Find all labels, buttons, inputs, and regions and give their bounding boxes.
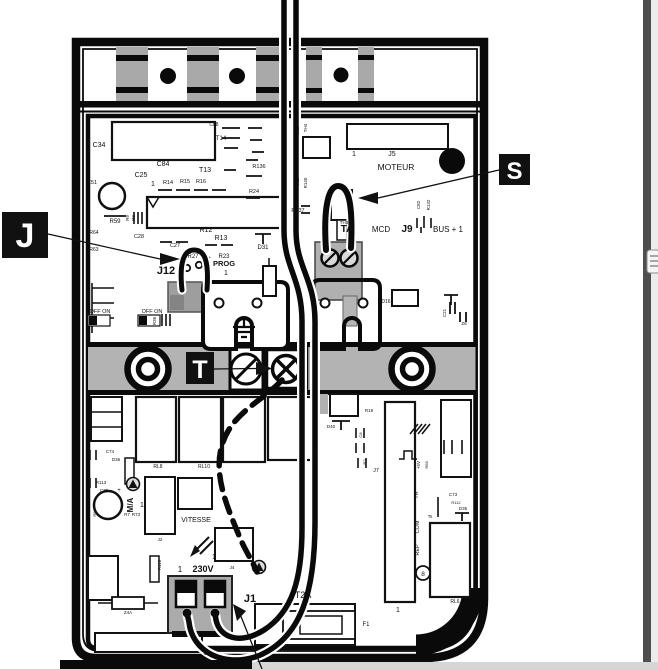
board-label: C34: [93, 142, 106, 149]
board-label: OFF ON: [90, 309, 111, 315]
wire-terminal-dot: [211, 609, 220, 618]
callout-s-letter: S: [506, 158, 522, 185]
board-label: U11: [295, 178, 300, 186]
board-label: J2: [158, 537, 163, 542]
relay-rl10: [179, 397, 221, 462]
faston-hole: [253, 299, 262, 308]
board-label: 230V: [192, 564, 213, 574]
board-label: REP: [415, 544, 421, 556]
board-label: 1: [212, 554, 216, 561]
board-label: C1: [203, 651, 210, 657]
board-label: R15: [180, 179, 190, 185]
board-label: R136: [252, 164, 265, 170]
board-label: C74: [106, 449, 115, 454]
board-label: C73: [449, 492, 458, 497]
cross-screw-icon: [273, 356, 300, 383]
board-label: 8: [421, 571, 425, 578]
board-label: U12: [295, 126, 300, 135]
mounting-washer: [128, 349, 169, 390]
board-label: C88: [209, 122, 218, 128]
board-label: D36: [112, 457, 121, 462]
scroll-grip-handle[interactable]: [647, 250, 658, 273]
board-label: J1: [244, 593, 256, 605]
faston-hole: [321, 299, 330, 308]
fuse-component: [263, 266, 276, 296]
callout-t-letter: T: [192, 356, 207, 384]
board-label: OFF ON: [142, 309, 163, 315]
board-label: T14: [216, 136, 227, 142]
board-label: C27: [170, 243, 180, 249]
board-label: T2A: [295, 590, 312, 600]
ic-r12: [147, 197, 283, 228]
board-dot: [439, 148, 465, 174]
board-label: R36: [152, 316, 157, 325]
board-label: D40: [327, 424, 336, 429]
board-label: R2: [362, 459, 367, 465]
bottom-frame-bar: [60, 660, 252, 669]
board-label: BUS + 1: [433, 225, 464, 234]
document-page: J S T C34C84C25T13T14C881R14R15R16R136R2…: [0, 0, 658, 669]
board-label: R115: [157, 559, 162, 570]
board-label: +5V: [416, 461, 421, 469]
relay-rl8: [136, 397, 176, 462]
board-label: R64: [89, 230, 98, 236]
board-label: C51: [87, 180, 97, 186]
board-label: MCD: [372, 225, 390, 234]
board-label: 1: [151, 181, 155, 188]
board-label: D16: [381, 299, 390, 305]
board-label: R19: [365, 408, 374, 413]
board-label: R12: [200, 227, 213, 234]
connector-small: [303, 137, 330, 158]
faston-hole: [359, 299, 368, 308]
board-label: VITESSE: [181, 517, 211, 524]
board-label: M/A: [126, 497, 135, 512]
board-label: R112: [451, 500, 461, 505]
board-label: D35: [459, 506, 468, 511]
board-label: R98: [86, 509, 91, 517]
vitesse-block: [178, 478, 212, 509]
board-label: R7: [124, 512, 130, 517]
board-label: F1: [362, 622, 370, 628]
component-block: [441, 400, 471, 477]
board-label: C21: [442, 308, 447, 317]
board-label: 1: [140, 502, 144, 509]
faston-hole: [215, 299, 224, 308]
component-block: [330, 394, 358, 416]
connector-j5-moteur: [347, 124, 448, 149]
board-label: J7: [373, 468, 379, 474]
bottom-gray-bar: [252, 662, 658, 669]
board-label: 1: [352, 151, 356, 158]
board-label: Z6: [461, 321, 467, 326]
board-label: RL6: [450, 599, 459, 605]
relay-rl6: [430, 523, 470, 597]
viewer-margin-strip: [651, 0, 658, 669]
board-label: C84: [157, 161, 170, 168]
board-label: R8: [131, 215, 136, 221]
board-label: R137: [291, 208, 304, 214]
board-label: C82: [416, 200, 421, 209]
board-label: R63: [89, 247, 98, 253]
fuse-z4a: [112, 597, 144, 609]
board-label: R113: [96, 480, 107, 485]
rail-rivet: [160, 68, 176, 84]
board-label: C25: [135, 172, 148, 179]
board-label: D31: [257, 245, 269, 251]
capacitor-c51: [99, 183, 125, 209]
board-label: R13: [215, 235, 228, 242]
capacitor-c75: [94, 491, 122, 519]
rail-rivet: [334, 68, 349, 83]
callout-j-letter: J: [16, 217, 35, 255]
board-label: PROG: [213, 259, 235, 268]
board-label: RL10: [198, 464, 210, 470]
board-label: R27: [187, 254, 199, 260]
board-label: TA: [341, 224, 354, 235]
board-label: TR: [414, 491, 420, 498]
board-label: TH4: [303, 123, 308, 132]
wiring-diagram: J S T C34C84C25T13T14C881R14R15R16R136R2…: [0, 0, 658, 669]
board-label: C28: [134, 234, 144, 240]
board-label: 1: [224, 270, 228, 277]
board-label: C8: [358, 432, 363, 438]
capacitor-c34: [112, 122, 215, 160]
board-label: Ts: [428, 514, 433, 519]
board-label: 1: [396, 607, 400, 614]
ic-strip: [385, 402, 415, 602]
component-block: [392, 290, 418, 306]
board-label: R9: [125, 215, 130, 221]
viewer-divider-strip: [643, 0, 651, 669]
board-label: RL13: [312, 447, 317, 458]
component-block: [91, 397, 122, 441]
rail-rivet: [229, 68, 245, 84]
board-label: R132: [426, 199, 431, 210]
board-label: R14: [163, 180, 173, 186]
board-label: R99: [92, 509, 97, 517]
board-label: R16: [196, 179, 206, 185]
board-label: COM: [415, 520, 421, 533]
board-label: R73: [132, 512, 141, 517]
board-label: C75: [100, 488, 109, 493]
board-label: J5: [388, 151, 396, 158]
board-label: +: [117, 488, 121, 494]
board-label: R140: [303, 177, 308, 188]
board-label: RL8: [153, 464, 162, 470]
board-label: MOTEUR: [378, 162, 415, 172]
mounting-washer: [392, 349, 433, 390]
board-label: J4: [230, 565, 235, 570]
board-label: 1: [178, 565, 183, 574]
board-label: R59: [109, 219, 121, 225]
wire-terminal-dot: [183, 609, 192, 618]
board-label: R68: [424, 461, 429, 469]
board-label: R24: [249, 189, 259, 195]
component-block: [88, 556, 118, 600]
warning-triangle-icon: [127, 478, 140, 491]
board-label: T13: [199, 167, 211, 174]
board-label: J9: [401, 224, 413, 235]
component-j2: [145, 477, 175, 534]
board-label: J12: [157, 265, 175, 277]
board-label: Z4A: [124, 610, 132, 615]
